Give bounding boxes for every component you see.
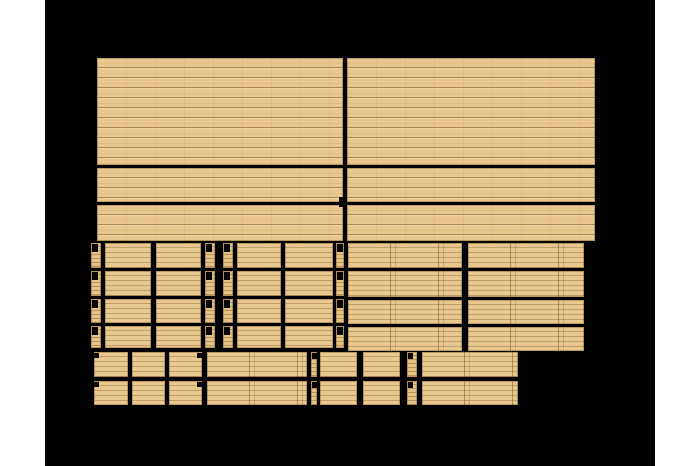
notch-mark: [224, 300, 230, 308]
notch-mark: [94, 353, 99, 358]
bottom-plank: [422, 352, 518, 377]
notch-mark: [224, 327, 230, 335]
frame-plank: [105, 243, 151, 268]
notch-mark: [206, 244, 212, 252]
top-left-band-1: [97, 168, 343, 202]
frame-plank: [285, 299, 333, 323]
frame-plank: [156, 326, 201, 348]
bottom-plank: [422, 381, 518, 405]
bottom-plank: [132, 381, 165, 405]
notch-mark: [408, 382, 413, 388]
frame-plank: [285, 271, 333, 296]
frame-plank: [285, 243, 333, 268]
notch-mark: [312, 382, 317, 388]
notch-mark: [337, 244, 343, 252]
wood-structure-layer: [0, 0, 700, 466]
notch-mark: [206, 272, 212, 280]
board-plank: [468, 300, 584, 324]
board-plank: [348, 271, 462, 297]
notch-mark: [206, 327, 212, 335]
frame-plank: [285, 326, 333, 348]
notch-mark: [92, 272, 98, 280]
frame-plank: [237, 299, 281, 323]
board-plank: [348, 243, 462, 268]
board-plank: [348, 327, 462, 351]
frame-plank: [156, 243, 201, 268]
bottom-plank: [207, 381, 307, 405]
frame-plank: [237, 326, 281, 348]
top-right-band-2: [347, 205, 595, 241]
bottom-plank: [94, 381, 128, 405]
frame-plank: [237, 271, 281, 296]
top-right-panel: [347, 58, 595, 165]
notch-mark: [224, 272, 230, 280]
board-plank: [468, 271, 584, 297]
notch-mark: [197, 353, 202, 358]
frame-plank: [105, 271, 151, 296]
frame-plank: [237, 243, 281, 268]
bottom-plank: [132, 352, 165, 377]
bottom-plank: [363, 352, 400, 377]
notch-mark: [224, 244, 230, 252]
top-left-panel: [97, 58, 343, 165]
bottom-plank: [320, 352, 357, 377]
bottom-plank: [207, 352, 307, 377]
board-plank: [468, 327, 584, 351]
frame-plank: [105, 326, 151, 348]
notch-mark: [312, 353, 317, 359]
notch-mark: [408, 353, 413, 359]
frame-plank: [156, 271, 201, 296]
board-plank: [348, 300, 462, 324]
notch-mark: [197, 382, 202, 387]
notch-mark: [337, 327, 343, 335]
top-right-band-1: [347, 168, 595, 202]
frame-plank: [105, 299, 151, 323]
notch-mark: [337, 300, 343, 308]
notch-mark: [94, 382, 99, 387]
bottom-plank: [94, 352, 128, 377]
board-plank: [468, 243, 584, 268]
notch-mark: [206, 300, 212, 308]
notch-mark: [92, 327, 98, 335]
notch-mark: [339, 197, 346, 207]
notch-mark: [337, 272, 343, 280]
top-left-band-2: [97, 205, 343, 241]
notch-mark: [92, 244, 98, 252]
bottom-plank: [320, 381, 357, 405]
notch-mark: [92, 300, 98, 308]
bottom-plank: [363, 381, 400, 405]
frame-plank: [156, 299, 201, 323]
